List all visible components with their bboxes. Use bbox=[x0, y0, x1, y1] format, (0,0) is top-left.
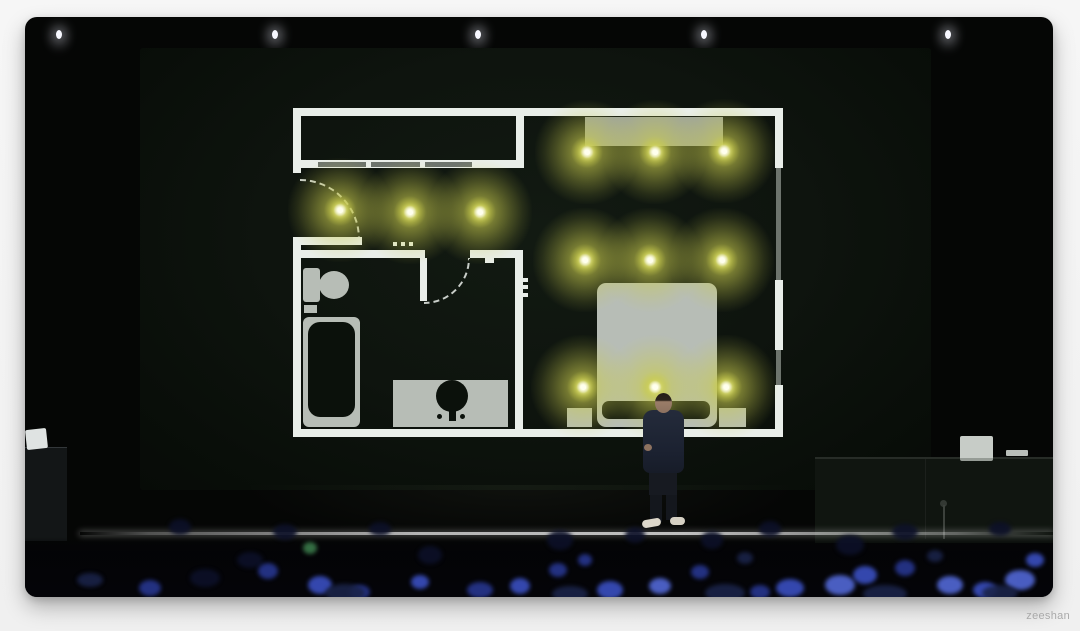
presenter-shoe bbox=[670, 517, 685, 525]
audience-member bbox=[467, 582, 493, 597]
room-light-core bbox=[583, 258, 588, 263]
room-light-core bbox=[585, 150, 590, 155]
ceiling-spotlight bbox=[701, 30, 707, 39]
audience-member bbox=[927, 550, 943, 562]
room-light-core bbox=[581, 385, 586, 390]
audience-member bbox=[77, 573, 103, 587]
audience-member bbox=[1005, 570, 1035, 590]
audience-member bbox=[853, 566, 877, 584]
room-light-core bbox=[653, 150, 658, 155]
stage-podium-left bbox=[25, 447, 67, 541]
sink-knob bbox=[460, 414, 465, 419]
audience-member bbox=[190, 569, 220, 587]
audience-member bbox=[705, 584, 745, 597]
room-light-core bbox=[724, 385, 729, 390]
sink-basin bbox=[436, 380, 468, 412]
presenter-torso bbox=[643, 410, 684, 473]
audience-member bbox=[411, 575, 429, 589]
room-light-glow bbox=[672, 99, 776, 203]
audience-member bbox=[237, 552, 263, 568]
audience-member bbox=[258, 563, 278, 579]
ceiling-spotlight bbox=[475, 30, 481, 39]
stage-console-right bbox=[815, 457, 1053, 543]
presenter-head bbox=[655, 393, 672, 413]
floor-plan-diagram bbox=[293, 108, 783, 437]
bathtub-basin bbox=[308, 322, 355, 417]
audience-member bbox=[750, 585, 770, 597]
audience-member bbox=[597, 581, 623, 597]
audience-member bbox=[549, 563, 567, 577]
stage-floor-reflection bbox=[240, 485, 800, 545]
audience-darkness bbox=[25, 537, 1053, 597]
wall-right-a bbox=[775, 108, 783, 168]
audience-member bbox=[552, 586, 588, 597]
audience-member bbox=[308, 576, 332, 594]
toilet-tank bbox=[303, 268, 320, 302]
presenter-hand-with-clicker bbox=[644, 444, 652, 451]
audience-member bbox=[776, 579, 804, 597]
audience-member bbox=[510, 578, 530, 594]
audience-member bbox=[325, 584, 365, 597]
ceiling-spotlight bbox=[272, 30, 278, 39]
sink-faucet bbox=[449, 410, 456, 421]
toilet-bowl bbox=[319, 271, 349, 299]
audience-member bbox=[737, 552, 753, 564]
audience-member bbox=[649, 578, 671, 594]
wall-outlet-mark bbox=[523, 293, 528, 297]
room-light-core bbox=[478, 210, 483, 215]
audience-member bbox=[982, 585, 1018, 597]
wall-outlet-mark bbox=[523, 285, 528, 289]
audience-member bbox=[418, 546, 442, 564]
audience-member bbox=[139, 580, 161, 596]
stage-photo bbox=[25, 17, 1053, 597]
room-light-glow bbox=[670, 208, 774, 312]
audience-member bbox=[1026, 553, 1044, 567]
room-light-core bbox=[653, 385, 658, 390]
laptop-left bbox=[25, 428, 48, 450]
audience-member bbox=[937, 576, 963, 594]
audience-member bbox=[578, 554, 592, 566]
wall-outlet-mark bbox=[523, 278, 528, 282]
room-light-core bbox=[408, 210, 413, 215]
console-item bbox=[1006, 450, 1028, 456]
bathroom-door-arc bbox=[424, 258, 470, 304]
room-light-glow bbox=[428, 160, 532, 264]
audience-member bbox=[691, 565, 709, 579]
closet-right-wall bbox=[516, 108, 524, 168]
interior-wall bbox=[515, 250, 523, 437]
stage-edge-light bbox=[80, 532, 1053, 535]
audience-member bbox=[350, 585, 370, 597]
console-seam bbox=[925, 459, 926, 539]
room-light-core bbox=[720, 258, 725, 263]
laptop-right bbox=[960, 436, 993, 461]
room-light-core bbox=[338, 208, 343, 213]
presenter bbox=[630, 391, 702, 539]
audience-member bbox=[825, 575, 855, 595]
sink-knob bbox=[437, 414, 442, 419]
ceiling-spotlight bbox=[945, 30, 951, 39]
audience-member bbox=[895, 560, 915, 576]
room-light-core bbox=[648, 258, 653, 263]
ceiling-spotlight bbox=[56, 30, 62, 39]
wall-left-lower bbox=[293, 237, 301, 437]
room-light-core bbox=[722, 149, 727, 154]
audience-member bbox=[863, 585, 907, 597]
bathroom-door-jamb bbox=[420, 258, 427, 301]
watermark-text: zeeshan bbox=[1026, 610, 1070, 622]
window-right-upper bbox=[776, 168, 781, 280]
toilet-base bbox=[304, 305, 317, 313]
audience-member bbox=[973, 582, 997, 597]
